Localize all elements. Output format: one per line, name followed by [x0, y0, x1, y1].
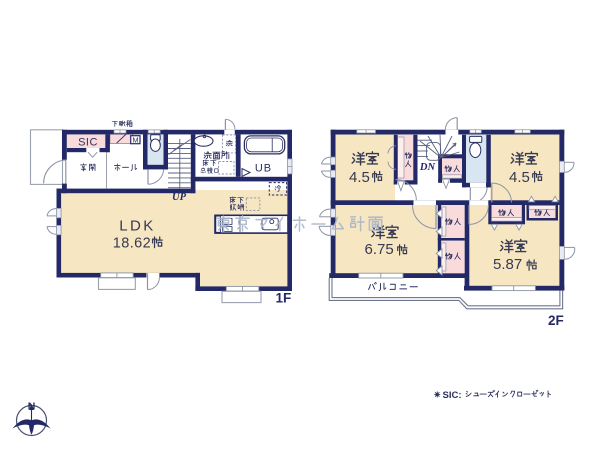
svg-text:SIC:: SIC:	[443, 390, 462, 401]
svg-text:2F: 2F	[548, 313, 564, 328]
svg-text:LDK: LDK	[119, 217, 155, 234]
svg-text:DN: DN	[419, 162, 436, 173]
svg-text:M: M	[132, 136, 138, 145]
svg-text:4.5: 4.5	[349, 169, 370, 186]
svg-text:4.5: 4.5	[509, 169, 530, 186]
svg-text:1F: 1F	[276, 291, 292, 306]
svg-text:UB: UB	[255, 163, 272, 175]
svg-text:UP: UP	[172, 192, 187, 203]
svg-text:5.87: 5.87	[493, 256, 522, 273]
svg-text:6.75: 6.75	[365, 241, 394, 258]
svg-text:18.62: 18.62	[113, 236, 151, 252]
svg-text:SIC: SIC	[78, 136, 98, 148]
